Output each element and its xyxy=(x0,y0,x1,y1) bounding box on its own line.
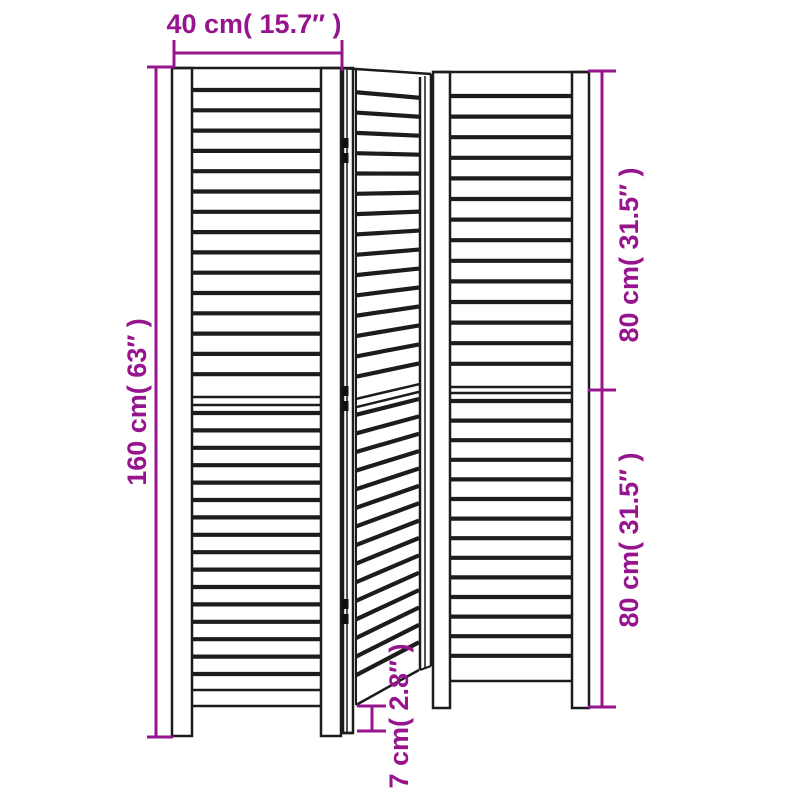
louver-slat xyxy=(356,269,419,276)
louver-slat xyxy=(356,451,419,470)
width-dimension-line xyxy=(174,40,342,71)
louver-slat xyxy=(356,434,419,452)
louver-slat xyxy=(356,288,419,296)
hinge-icon xyxy=(342,614,349,624)
dimension-annotations: 40 cm( 15.7″ ) 160 cm( 63″ ) 80 cm( 31.5… xyxy=(122,9,644,789)
louver-slat xyxy=(356,133,419,136)
panel-top-edge xyxy=(341,68,431,74)
panel-stile-right xyxy=(572,72,589,708)
louver-slat xyxy=(356,306,419,315)
louver-slat xyxy=(356,250,419,255)
width-dimension-label: 40 cm( 15.7″ ) xyxy=(166,9,341,39)
panel-stile-right xyxy=(321,68,341,736)
louver-slat xyxy=(356,416,419,433)
louver-slat xyxy=(356,212,419,215)
hinge-icon xyxy=(342,153,349,163)
louver-slat xyxy=(356,325,419,336)
panel-stile-left xyxy=(172,68,192,736)
panel-mid-rail-edge xyxy=(356,384,419,399)
panel-stile-left xyxy=(433,72,450,708)
louver-slat xyxy=(356,468,419,489)
louver-slat xyxy=(356,153,419,154)
right-dimension-line xyxy=(588,71,616,707)
louver-slat xyxy=(356,399,419,415)
louver-slat xyxy=(356,231,419,235)
center-panel xyxy=(341,68,431,733)
divider-illustration xyxy=(172,68,589,736)
louver-slat xyxy=(356,607,419,638)
louver-slat xyxy=(356,193,419,194)
hinge-icon xyxy=(342,386,349,396)
louver-slat xyxy=(356,113,419,117)
hinge-icon xyxy=(342,599,349,609)
lower-section-dimension-label: 80 cm( 31.5″ ) xyxy=(614,452,644,627)
height-dimension-label: 160 cm( 63″ ) xyxy=(122,318,152,486)
foot-dimension-label: 7 cm( 2.8″ ) xyxy=(384,644,414,789)
hinge-icon xyxy=(342,138,349,148)
upper-section-dimension-label: 80 cm( 31.5″ ) xyxy=(614,167,644,342)
louver-slat xyxy=(356,344,419,356)
panel-stile-left xyxy=(343,68,353,733)
foot-dimension-line xyxy=(357,706,386,731)
hinge-icon xyxy=(342,401,349,411)
room-divider-dimension-diagram: 40 cm( 15.7″ ) 160 cm( 63″ ) 80 cm( 31.5… xyxy=(0,0,800,800)
left-panel xyxy=(172,68,341,736)
louver-slat xyxy=(356,363,419,376)
louver-slat xyxy=(356,92,419,98)
right-panel xyxy=(433,72,589,708)
